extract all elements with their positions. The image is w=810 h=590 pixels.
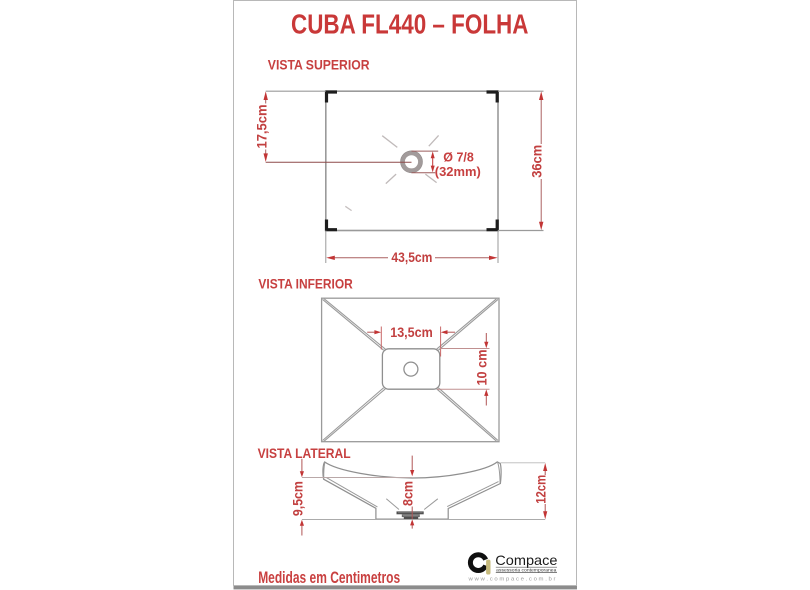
svg-text:17,5cm: 17,5cm [254, 105, 269, 149]
svg-text:9,5cm: 9,5cm [290, 481, 305, 516]
svg-text:Compace: Compace [495, 552, 557, 568]
svg-text:Medidas em Centimetros: Medidas em Centimetros [258, 568, 400, 587]
svg-text:Ø 7/8: Ø 7/8 [443, 150, 474, 165]
svg-text:8cm: 8cm [401, 481, 416, 506]
svg-text:43,5cm: 43,5cm [391, 250, 432, 265]
svg-text:VISTA LATERAL: VISTA LATERAL [258, 445, 351, 461]
svg-text:(32mm): (32mm) [435, 164, 481, 179]
svg-text:VISTA SUPERIOR: VISTA SUPERIOR [268, 57, 370, 73]
svg-text:12cm: 12cm [533, 475, 548, 504]
svg-text:assessoria contemporanea: assessoria contemporanea [496, 567, 557, 572]
svg-text:VISTA INFERIOR: VISTA INFERIOR [258, 275, 352, 291]
svg-text:10 cm: 10 cm [475, 350, 490, 386]
svg-text:CUBA FL440 – FOLHA: CUBA FL440 – FOLHA [291, 8, 529, 39]
svg-text:36cm: 36cm [528, 145, 544, 178]
svg-text:w w w . c o m p a c e . c o m: w w w . c o m p a c e . c o m . b r [467, 576, 555, 582]
svg-text:13,5cm: 13,5cm [390, 325, 433, 340]
